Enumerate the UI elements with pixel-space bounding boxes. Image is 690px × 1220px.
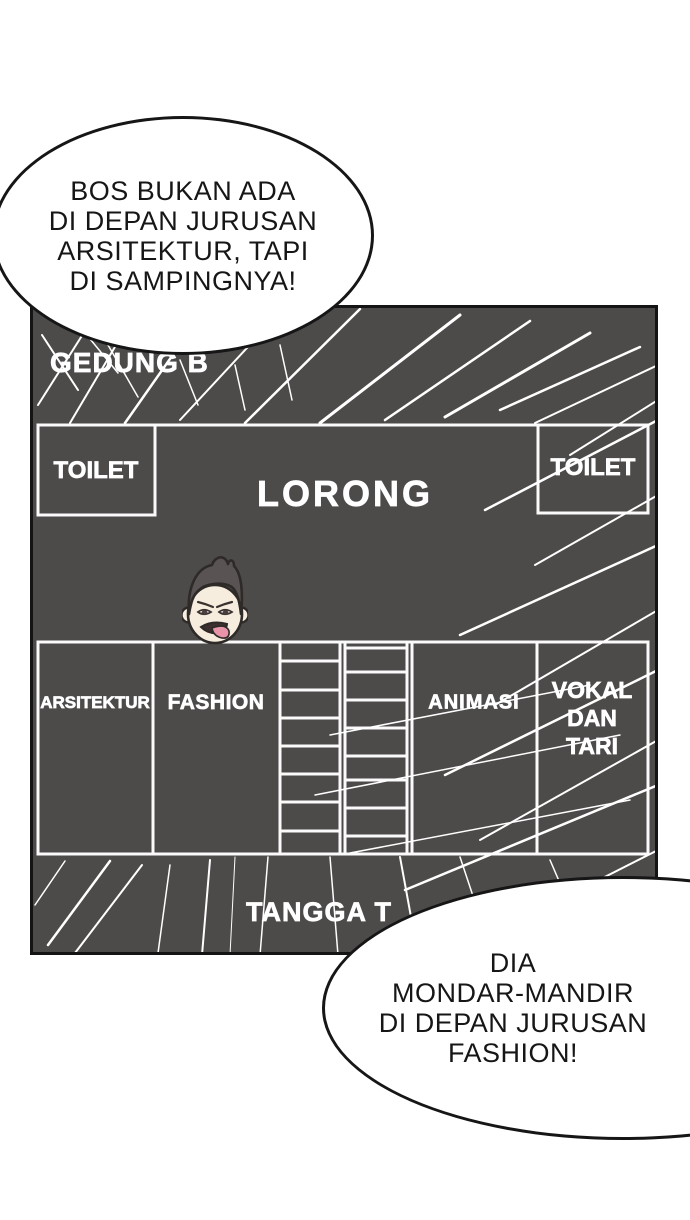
character-face-icon xyxy=(182,552,248,650)
comic-page: { "page": { "background_color": "#ffffff… xyxy=(0,0,690,1220)
speech-bubble-bottom-text: DIA MONDAR-MANDIR DI DEPAN JURUSAN FASHI… xyxy=(333,948,690,1068)
speed-lines xyxy=(35,307,658,955)
room-label-fashion: FASHION xyxy=(168,691,265,715)
room-label-arsitektur: ARSITEKTUR xyxy=(40,693,150,713)
room-label-vokal-dan-tari: VOKAL DAN TARI xyxy=(539,676,645,760)
stairs-label: TANGGA T xyxy=(246,897,392,928)
floor-plan-panel: GEDUNG B TOILET LORONG TOILET ARSITEKTUR… xyxy=(30,305,658,955)
room-label-toilet-right: TOILET xyxy=(551,454,636,482)
speech-bubble-top: BOS BUKAN ADA DI DEPAN JURUSAN ARSITEKTU… xyxy=(0,116,374,355)
floor-plan-graphics xyxy=(30,305,658,955)
room-label-animasi: ANIMASI xyxy=(428,692,519,715)
speech-bubble-top-text: BOS BUKAN ADA DI DEPAN JURUSAN ARSITEKTU… xyxy=(49,176,318,296)
room-label-corridor: LORONG xyxy=(257,473,433,515)
room-label-toilet-left: TOILET xyxy=(54,457,139,485)
